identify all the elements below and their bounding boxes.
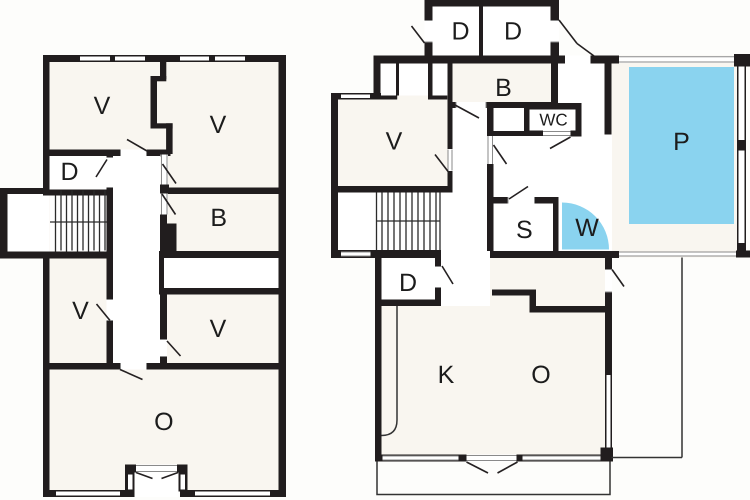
svg-text:D: D <box>399 269 417 297</box>
svg-text:W: W <box>575 214 599 242</box>
svg-text:O: O <box>531 361 550 389</box>
svg-text:V: V <box>94 92 111 120</box>
svg-text:V: V <box>210 111 227 139</box>
svg-text:D: D <box>504 18 522 46</box>
svg-text:B: B <box>495 74 512 102</box>
svg-text:D: D <box>451 18 469 46</box>
svg-text:V: V <box>210 315 227 343</box>
svg-text:D: D <box>60 158 78 186</box>
svg-text:B: B <box>210 204 227 232</box>
svg-text:P: P <box>673 128 690 156</box>
svg-text:K: K <box>438 361 455 389</box>
svg-text:V: V <box>72 297 89 325</box>
svg-text:WC: WC <box>539 110 567 129</box>
svg-text:O: O <box>154 408 173 436</box>
svg-text:V: V <box>386 128 403 156</box>
svg-text:S: S <box>516 216 533 244</box>
